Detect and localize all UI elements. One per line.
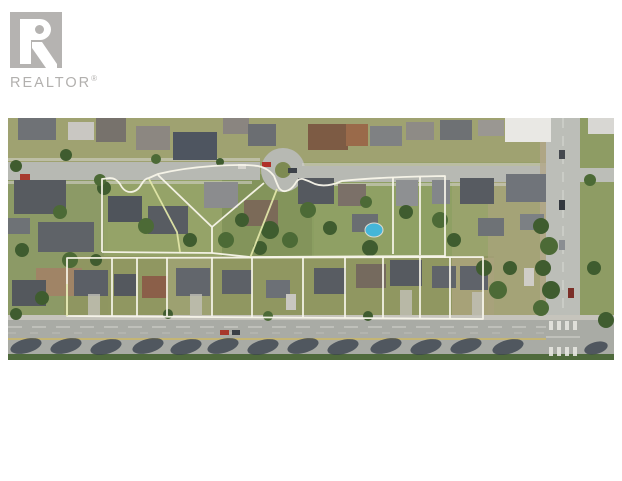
tree <box>138 218 154 234</box>
car <box>262 162 271 167</box>
car <box>559 240 565 250</box>
tree <box>598 312 614 328</box>
tree <box>399 205 413 219</box>
tree <box>533 300 549 316</box>
driveway <box>88 294 100 316</box>
house-roof <box>440 120 472 140</box>
house-roof <box>96 118 126 142</box>
house-roof <box>390 260 422 286</box>
tree <box>535 260 551 276</box>
rv-trailer <box>68 122 94 140</box>
house-roof <box>588 118 614 134</box>
crosswalk-marking <box>565 347 569 356</box>
page-canvas: REALTOR® <box>0 0 622 481</box>
tree <box>35 291 49 305</box>
sidewalk <box>302 163 548 166</box>
crosswalk-marking <box>557 321 561 330</box>
tree <box>94 174 106 186</box>
house-roof <box>148 206 188 234</box>
house-roof <box>74 270 108 296</box>
tree <box>15 243 29 257</box>
tree <box>363 311 373 321</box>
tree <box>360 196 372 208</box>
car <box>568 288 574 298</box>
aerial-photo <box>8 118 614 360</box>
aerial-photo-svg <box>8 118 614 360</box>
realtor-logo-text: REALTOR® <box>10 74 90 91</box>
house-roof <box>478 120 504 136</box>
house-roof <box>173 132 217 160</box>
house-roof <box>370 126 402 146</box>
house-roof <box>314 268 346 294</box>
realtor-wordmark: REALTOR <box>10 75 91 91</box>
car <box>559 150 565 159</box>
house-roof <box>142 276 168 298</box>
tree <box>90 254 102 266</box>
tree <box>282 232 298 248</box>
house-roof <box>136 126 170 150</box>
crosswalk-marking <box>573 321 577 330</box>
house-roof <box>18 118 56 140</box>
realtor-logo: REALTOR® <box>10 12 90 91</box>
tree <box>489 281 507 299</box>
house-roof <box>248 124 276 146</box>
tree <box>60 149 72 161</box>
rv-trailer <box>286 294 296 310</box>
swimming-pool <box>365 223 383 237</box>
tree <box>540 237 558 255</box>
rv-trailer <box>524 268 534 286</box>
tree <box>542 281 560 299</box>
tree <box>476 260 492 276</box>
crosswalk-marking <box>549 321 553 330</box>
car <box>559 200 565 210</box>
house-roof <box>38 222 94 252</box>
tree <box>533 218 549 234</box>
tree <box>10 160 22 172</box>
car <box>220 330 229 335</box>
crosswalk-marking <box>565 321 569 330</box>
house-roof <box>222 270 252 294</box>
house-roof <box>460 178 494 204</box>
house-roof <box>506 174 546 202</box>
tree <box>235 213 249 227</box>
house-roof <box>432 266 456 288</box>
tree <box>587 261 601 275</box>
house-roof <box>8 218 30 234</box>
tree <box>323 221 337 235</box>
car <box>288 168 297 173</box>
house-roof <box>204 182 238 208</box>
tree <box>263 311 273 321</box>
house-roof <box>396 180 418 206</box>
tree <box>300 202 316 218</box>
tree <box>503 261 517 275</box>
tree <box>447 233 461 247</box>
house-roof <box>356 264 386 288</box>
tree <box>151 154 161 164</box>
driveway <box>190 294 202 316</box>
stop-line <box>546 336 580 338</box>
tree <box>218 232 234 248</box>
commercial-roof <box>505 118 551 142</box>
registered-trademark: ® <box>91 74 97 83</box>
tree <box>183 233 197 247</box>
tree <box>362 240 378 256</box>
tree <box>10 308 22 320</box>
house-roof <box>406 122 434 140</box>
realtor-logo-icon <box>10 12 62 68</box>
crosswalk-marking <box>549 347 553 356</box>
house-roof <box>298 178 334 204</box>
house-roof <box>308 124 348 150</box>
house-roof <box>346 124 368 146</box>
house-roof <box>223 118 249 134</box>
house-roof <box>176 268 210 296</box>
house-roof <box>114 274 136 296</box>
car <box>20 174 30 180</box>
house-roof <box>432 180 450 204</box>
tree <box>584 174 596 186</box>
tree <box>53 205 67 219</box>
crosswalk-marking <box>573 347 577 356</box>
tree <box>62 252 78 268</box>
house-roof <box>478 218 504 236</box>
crosswalk-marking <box>557 347 561 356</box>
house-roof <box>108 196 142 222</box>
driveway <box>400 290 412 316</box>
car <box>232 330 240 335</box>
